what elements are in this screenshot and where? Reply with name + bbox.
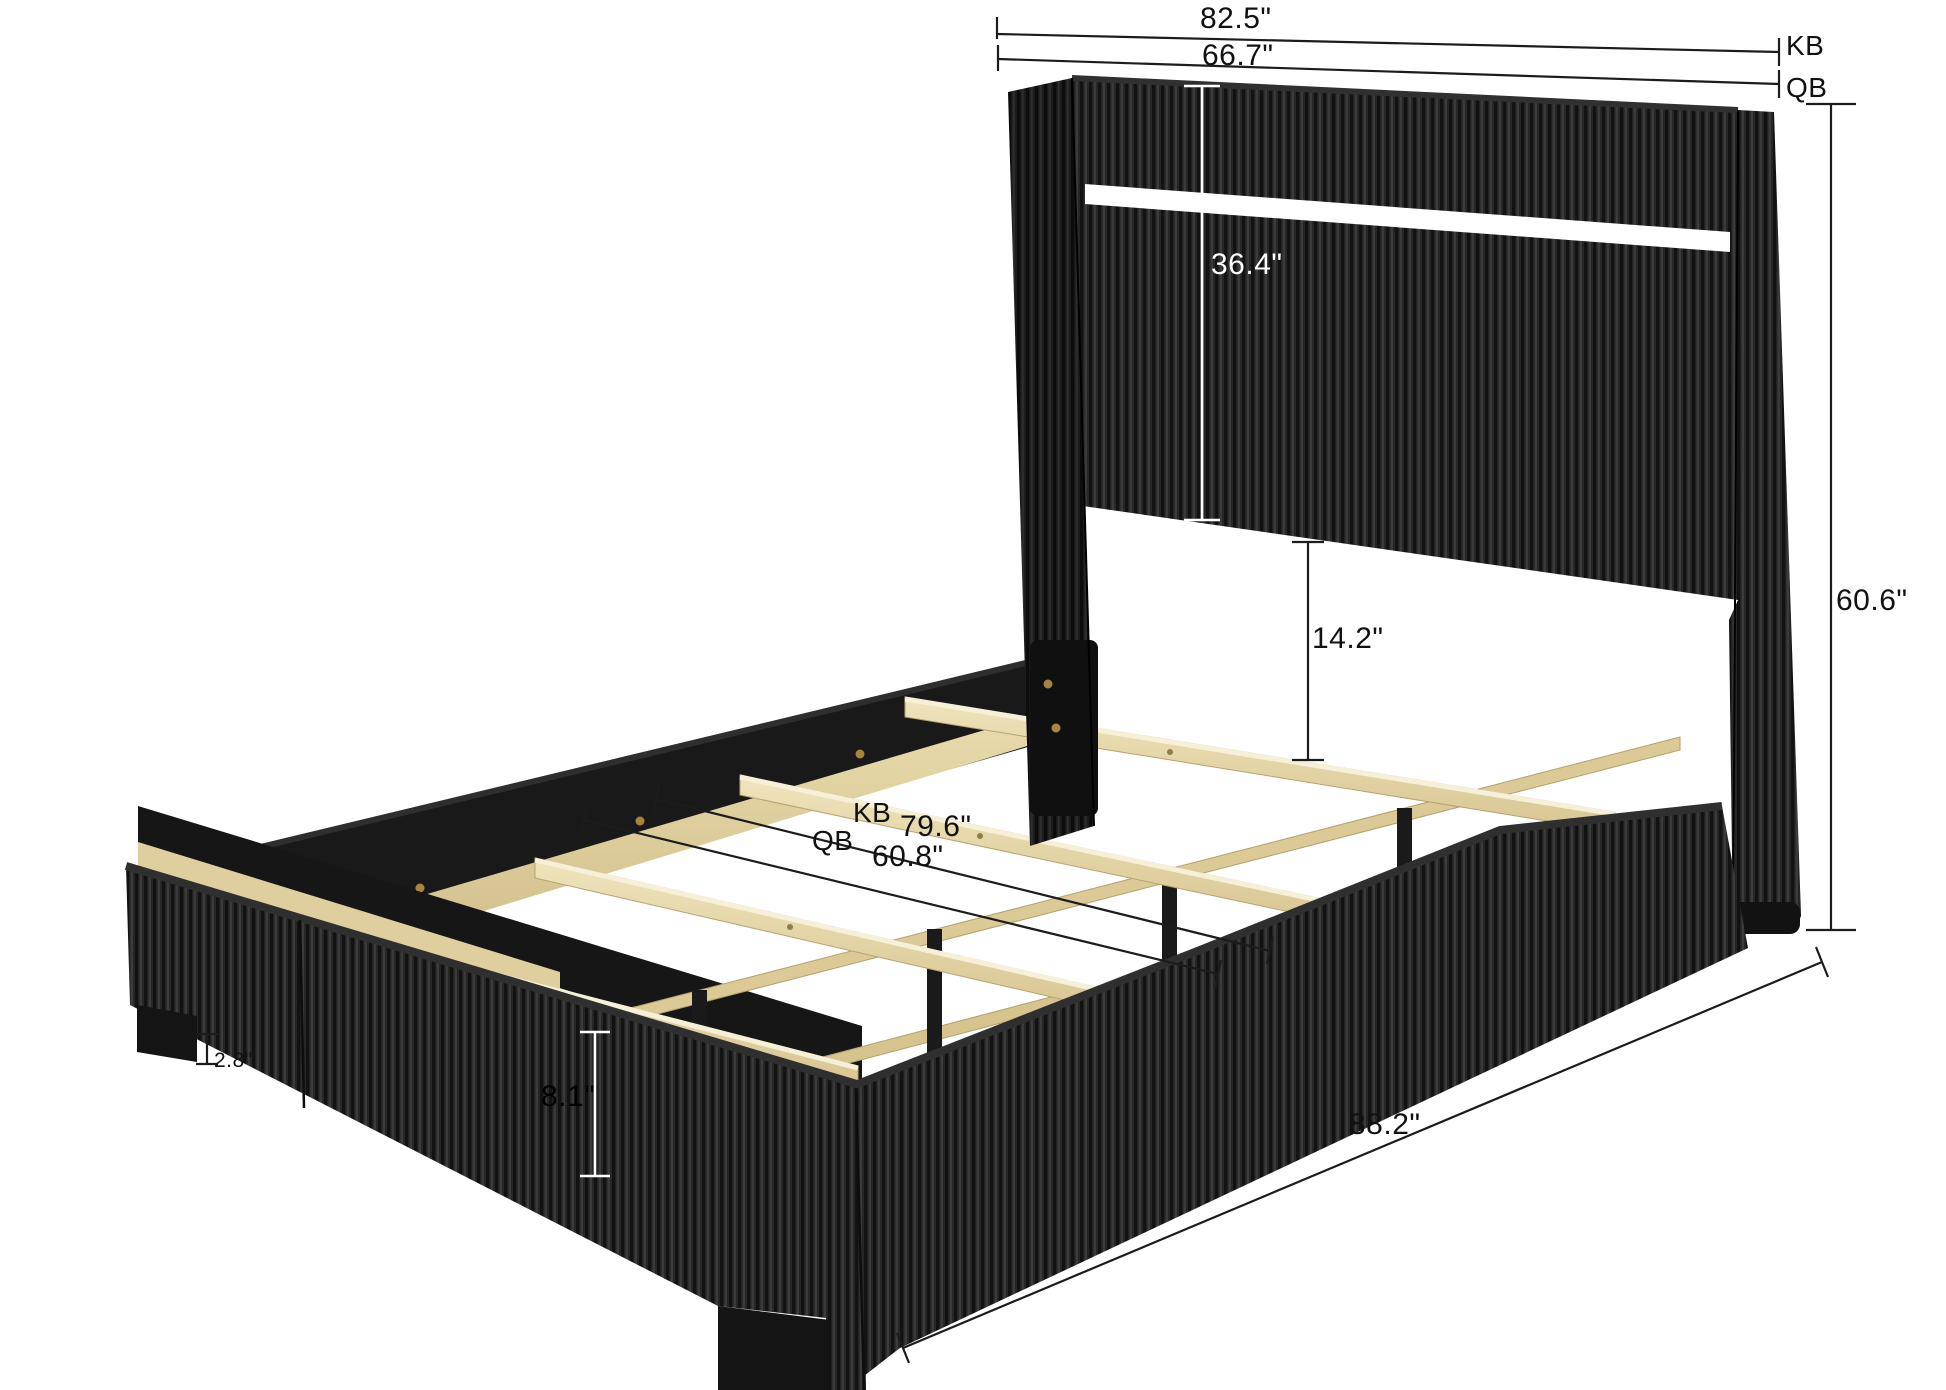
headboard-right-wing (1729, 110, 1801, 934)
dim-queen-headboard-width-label: 66.7" (1202, 41, 1274, 71)
queen-tag-top-label: QB (1786, 74, 1827, 102)
screw-icon (1052, 724, 1061, 733)
bed-dimension-diagram: 82.5" KB 66.7" QB 36.4" 14.2" KB 79.6" Q… (0, 0, 1946, 1390)
king-tag-interior-label: KB (853, 799, 891, 827)
dim-line-overall-height (1806, 104, 1856, 930)
dim-rail-height-label: 8.1" (541, 1082, 595, 1112)
headboard-left-bracket (1030, 640, 1098, 816)
dim-headboard-clearance-label: 14.2" (1312, 624, 1384, 654)
dim-overall-height-label: 60.6" (1836, 586, 1908, 616)
dim-line-king-headboard-width (997, 17, 1779, 66)
screw-icon (1044, 680, 1053, 689)
dim-queen-interior-width-label: 60.8" (872, 842, 944, 872)
dim-headboard-panel-height-label: 36.4" (1211, 250, 1283, 280)
dim-king-headboard-width-label: 82.5" (1200, 4, 1272, 34)
dim-leg-height-label: 2.8" (214, 1050, 253, 1071)
queen-tag-interior-label: QB (812, 827, 853, 855)
footboard-leg-near (718, 1306, 830, 1390)
dim-overall-length-label: 88.2" (1349, 1110, 1421, 1140)
king-tag-top-label: KB (1786, 32, 1824, 60)
bed-drawing (0, 0, 1946, 1390)
headboard-panel (1072, 78, 1738, 826)
dim-king-interior-width-label: 79.6" (900, 812, 972, 842)
wood-slat-1 (905, 697, 1615, 832)
